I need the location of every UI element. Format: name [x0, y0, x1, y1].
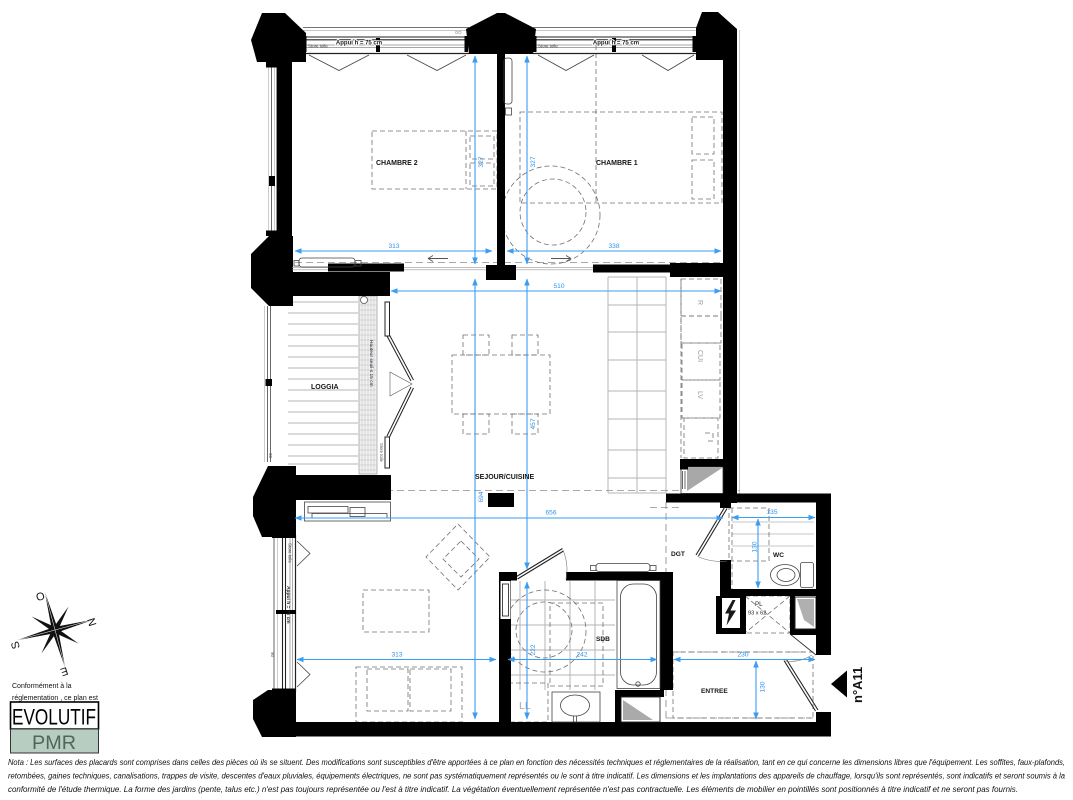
svg-text:n°A11: n°A11 [850, 667, 865, 703]
svg-text:retombées, gaines techniques,: retombées, gaines techniques, canalisati… [8, 772, 1065, 781]
svg-text:Hauteur seuil ≤ 15 cm: Hauteur seuil ≤ 15 cm [368, 340, 374, 387]
svg-text:LOGGIA: LOGGIA [311, 384, 339, 391]
svg-text:PL: PL [755, 601, 763, 608]
svg-text:EVOLUTIF: EVOLUTIF [12, 705, 96, 730]
svg-text:WC: WC [773, 552, 784, 559]
svg-text:313: 313 [388, 243, 399, 250]
svg-text:656: 656 [545, 510, 556, 517]
svg-text:LV: LV [696, 391, 703, 399]
svg-text:Nota : Les surfaces des placar: Nota : Les surfaces des placards sont co… [8, 758, 1065, 767]
svg-text:R: R [696, 300, 703, 305]
svg-text:Store toile: Store toile [538, 43, 558, 48]
svg-text:327: 327 [478, 156, 485, 167]
svg-text:Store toile: Store toile [288, 543, 293, 563]
svg-text:DGT: DGT [671, 551, 685, 558]
svg-text:CHAMBRE 2: CHAMBRE 2 [376, 160, 418, 167]
svg-text:327: 327 [530, 156, 537, 167]
svg-text:130: 130 [760, 681, 767, 692]
svg-text:242: 242 [576, 652, 587, 659]
svg-text:130: 130 [752, 541, 759, 552]
svg-text:ENTREE: ENTREE [701, 688, 728, 695]
svg-text:90: 90 [270, 652, 275, 657]
svg-text:CUI: CUI [696, 350, 703, 362]
svg-text:694: 694 [478, 491, 485, 502]
svg-text:Appui h = 75 cm: Appui h = 75 cm [285, 586, 291, 624]
svg-text:SDB: SDB [596, 636, 610, 643]
svg-text:90: 90 [268, 453, 273, 458]
svg-text:PMR: PMR [32, 733, 76, 754]
svg-text:Store toile: Store toile [308, 43, 328, 48]
svg-text:Appui h = 75 cm: Appui h = 75 cm [336, 41, 382, 47]
svg-text:313: 313 [391, 652, 402, 659]
svg-text:réglementation , ce plan est: réglementation , ce plan est [12, 695, 98, 702]
svg-text:Store toile: Store toile [379, 443, 384, 463]
svg-text:457: 457 [530, 418, 537, 429]
svg-text:LL: LL [519, 700, 531, 712]
svg-text:Appui h = 75 cm: Appui h = 75 cm [593, 41, 639, 47]
svg-text:510: 510 [553, 283, 564, 290]
svg-text:Conformément à la: Conformément à la [12, 683, 72, 690]
svg-text:CHAMBRE 1: CHAMBRE 1 [596, 160, 638, 167]
svg-text:338: 338 [608, 243, 619, 250]
svg-text:93 x 62: 93 x 62 [748, 611, 766, 617]
svg-text:SEJOUR/CUISINE: SEJOUR/CUISINE [475, 474, 534, 481]
svg-text:230: 230 [737, 652, 748, 659]
svg-text:222: 222 [530, 644, 537, 655]
svg-text:GO: GO [455, 30, 462, 35]
svg-text:135: 135 [766, 509, 777, 516]
svg-text:conformité de l'étude thermiqu: conformité de l'étude thermique. La form… [8, 785, 1018, 794]
